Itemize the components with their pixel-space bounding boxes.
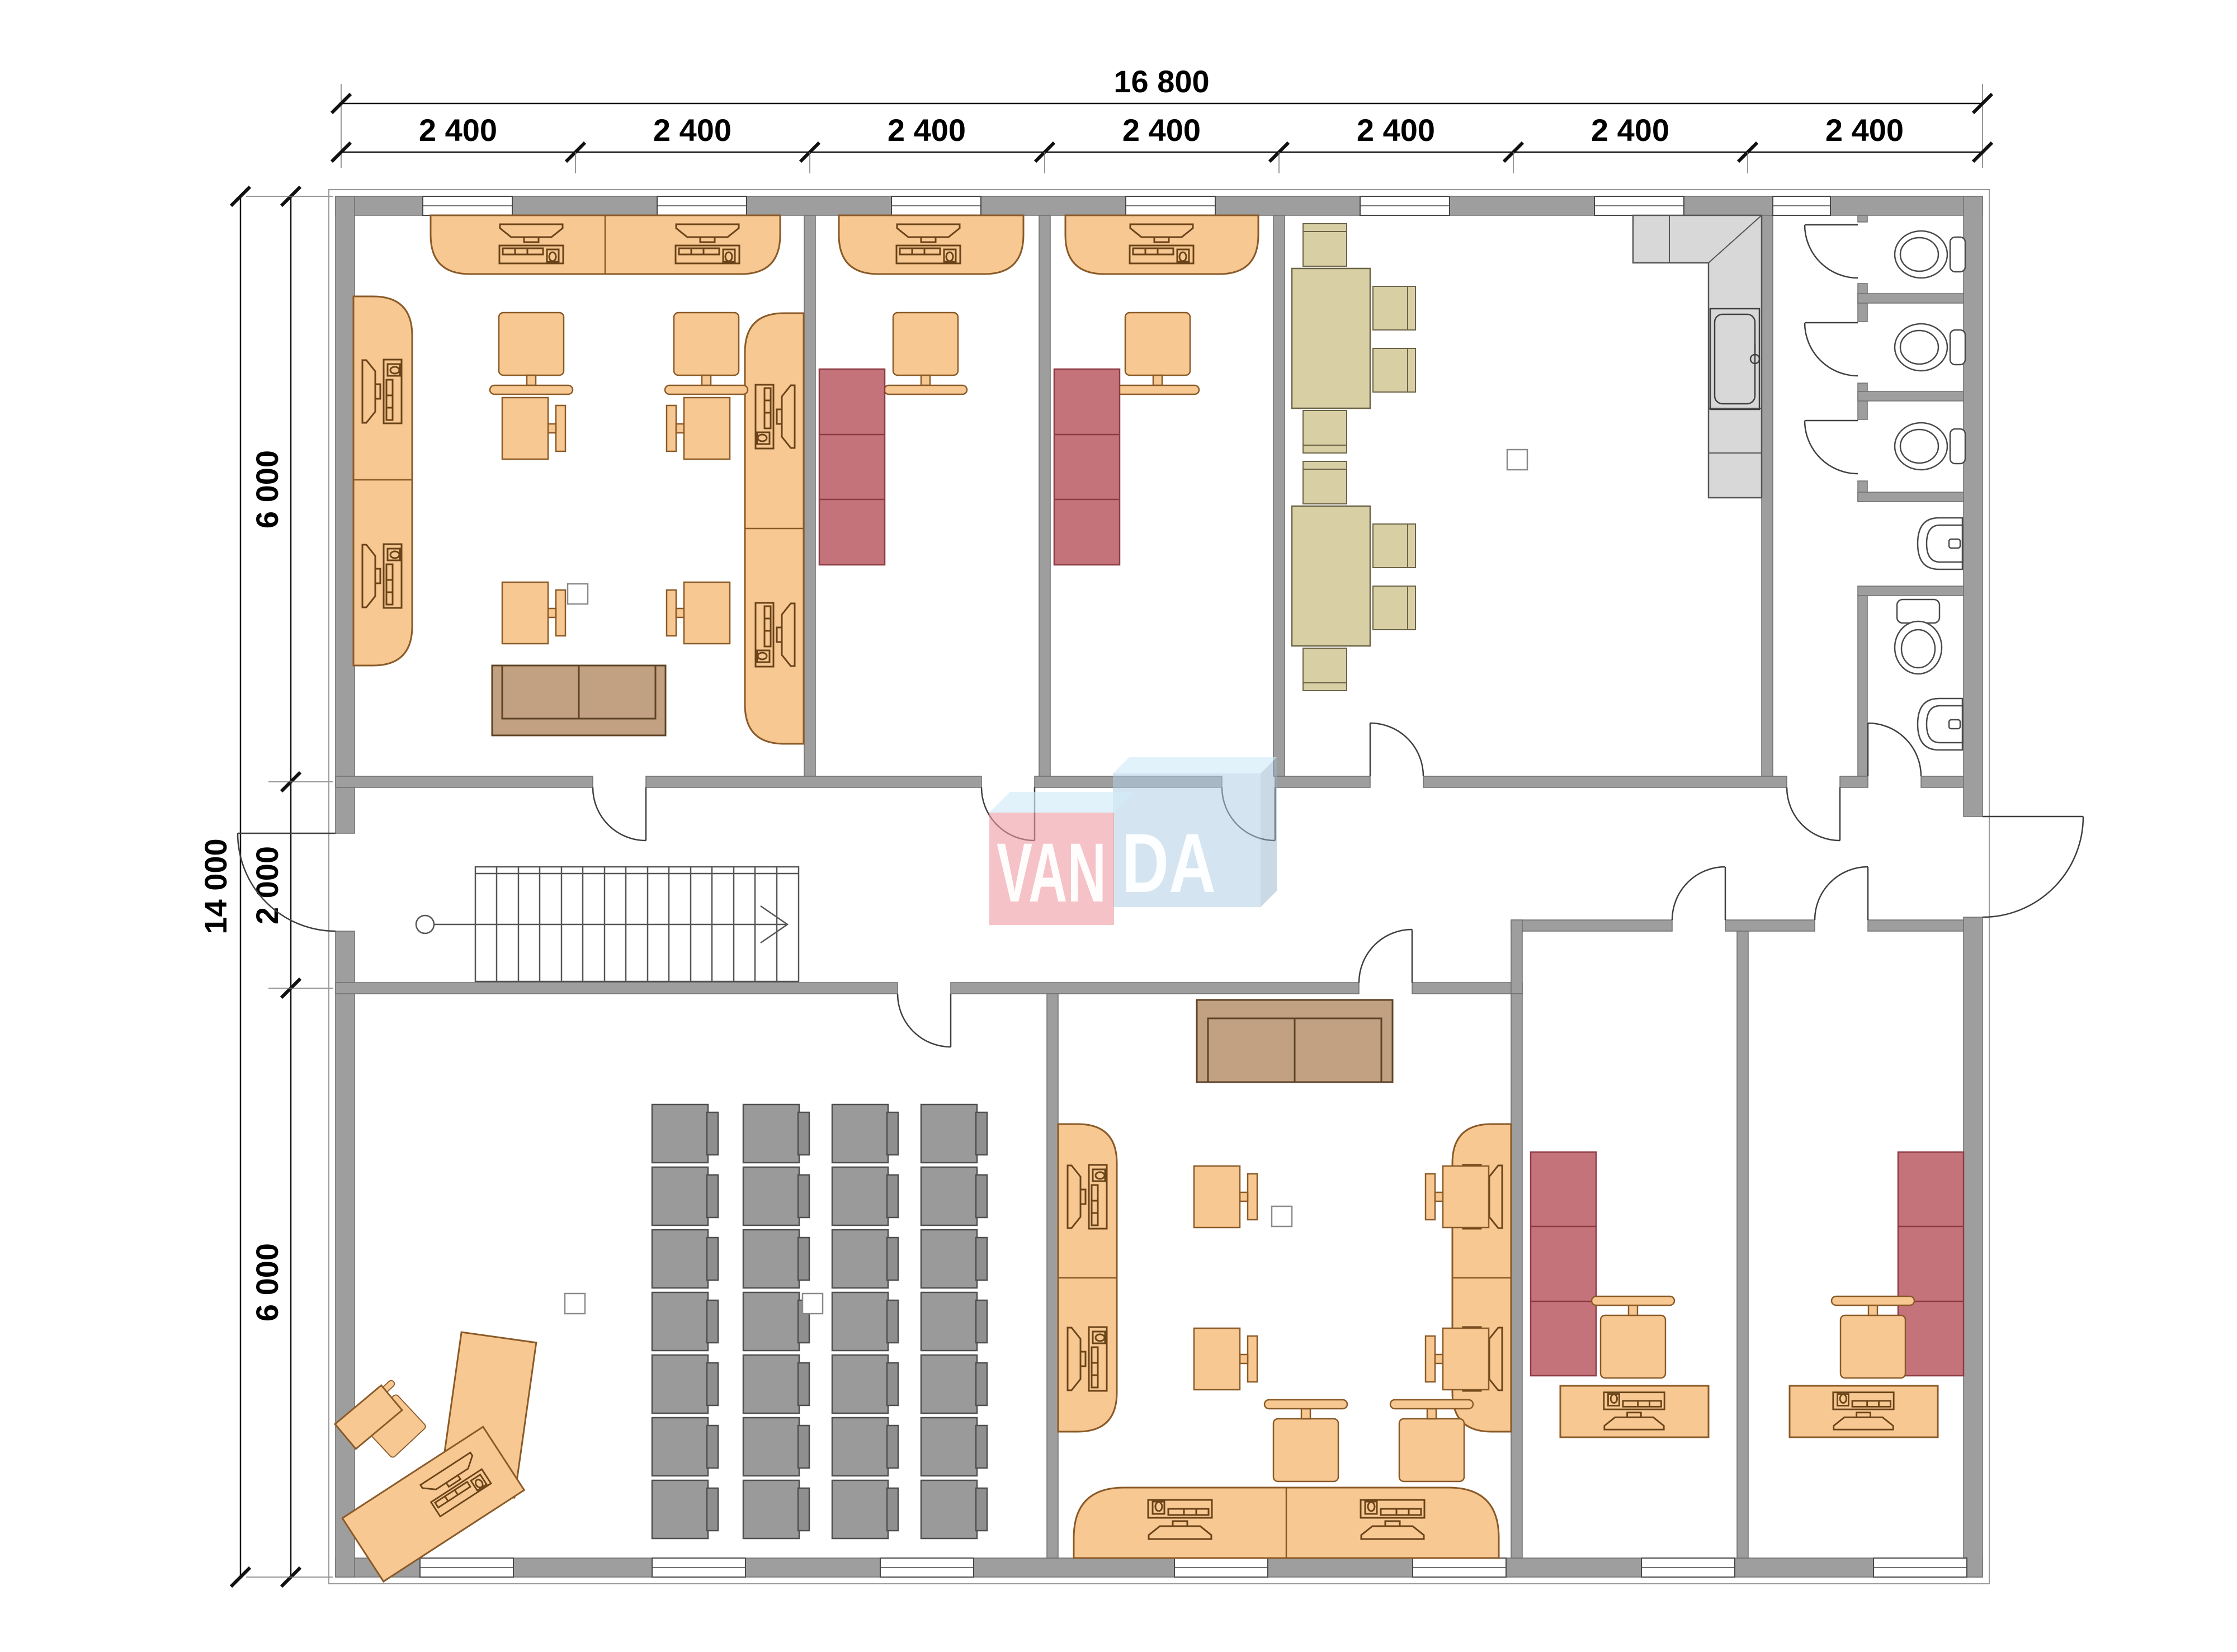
room-classroom	[335, 1105, 987, 1582]
window-icon	[1773, 196, 1830, 215]
sofa-icon	[492, 665, 666, 735]
wash-basin-icon	[1918, 698, 1962, 750]
teacher-desk	[335, 1332, 536, 1582]
logo-blue-box-top	[1113, 757, 1277, 773]
height-segment-label: 6 000	[249, 1243, 285, 1321]
classroom-desk-icon	[743, 1418, 809, 1476]
classroom-desk-icon	[921, 1105, 987, 1163]
toilet-icon	[1895, 324, 1965, 371]
column-marker	[803, 1294, 823, 1314]
office-chair-icon	[1116, 313, 1199, 394]
beige-chair-icon	[1303, 648, 1347, 691]
classroom-desk-icon	[743, 1105, 809, 1163]
counter-desk	[353, 296, 412, 665]
desk-chair-pair-icon	[1194, 1328, 1257, 1390]
classroom-desk-icon	[743, 1480, 809, 1538]
classroom-desk-icon	[743, 1230, 809, 1288]
red-shelf-icon	[819, 369, 885, 565]
window-icon	[891, 196, 981, 215]
door-swing-icon	[1805, 323, 1858, 376]
classroom-desk-icon	[652, 1230, 718, 1288]
window-icon	[1641, 1558, 1735, 1577]
window-icon	[423, 196, 512, 215]
toilet-icon	[1895, 231, 1965, 278]
left-total-dimension: 14 000	[198, 187, 250, 1587]
window-icon	[880, 1558, 974, 1577]
window-icon	[1873, 1558, 1967, 1577]
bay-label: 2 400	[1591, 112, 1669, 148]
desk-chair-pair-icon	[502, 398, 565, 459]
classroom-desk-icon	[921, 1292, 987, 1351]
beige-chair-icon	[1373, 586, 1415, 630]
classroom-desk-icon	[921, 1418, 987, 1476]
office-chair-icon	[490, 313, 573, 394]
window-icon	[1174, 1558, 1268, 1577]
office-chair-icon	[1264, 1400, 1347, 1481]
office-chair-icon	[665, 313, 748, 394]
desk-chair-pair-icon	[1194, 1166, 1257, 1228]
logo-pink-box-top	[989, 792, 1135, 813]
window-icon	[1594, 196, 1684, 215]
column-marker	[1507, 450, 1527, 470]
desk-chair-pair-icon	[667, 582, 730, 644]
floor-plan-drawing: 16 800 2 400 2 400 2 400 2 400 2 400 2 4…	[0, 0, 2237, 1652]
beige-chair-icon	[1373, 286, 1415, 330]
left-segment-dimensions: 6 000 2 000 6 000	[246, 187, 333, 1587]
room-office-3	[1054, 215, 1258, 565]
logo-blue-box-side	[1261, 757, 1277, 907]
stairs-icon	[416, 867, 799, 981]
window-icon	[1413, 1558, 1506, 1577]
window-icon	[657, 196, 747, 215]
logo-text-da: DA	[1122, 816, 1216, 910]
door-swing-icon	[1805, 225, 1858, 278]
door-swing-icon	[1359, 929, 1412, 983]
classroom-desk-icon	[832, 1292, 898, 1351]
classroom-desk-icon	[743, 1355, 809, 1413]
room-office-bottom-b	[1790, 1152, 1964, 1437]
classroom-desk-icon	[921, 1167, 987, 1225]
desk-chair-pair-icon	[1426, 1328, 1489, 1390]
classroom-desk-icon	[743, 1292, 809, 1351]
door-swing-icon	[1805, 421, 1858, 474]
door-swing-icon	[593, 787, 646, 841]
classroom-desk-icon	[921, 1230, 987, 1288]
classroom-desk-icon	[832, 1418, 898, 1476]
classroom-desk-icon	[652, 1167, 718, 1225]
column-marker	[1272, 1206, 1292, 1226]
classroom-desk-icon	[652, 1480, 718, 1538]
window-icon	[652, 1558, 745, 1577]
window-icon	[1360, 196, 1450, 215]
total-height-label: 14 000	[198, 838, 233, 934]
sofa-icon	[1197, 1000, 1393, 1082]
beige-chair-icon	[1373, 348, 1415, 392]
beige-table	[1292, 268, 1370, 408]
toilet-icon	[1895, 600, 1942, 674]
bay-label: 2 400	[653, 112, 731, 148]
red-shelf-icon	[1054, 369, 1120, 565]
room-open-office-top-left	[353, 215, 804, 744]
door-swing-icon	[1370, 723, 1423, 776]
classroom-desk-icon	[743, 1167, 809, 1225]
classroom-desk-icon	[832, 1105, 898, 1163]
total-width-label: 16 800	[1113, 64, 1209, 99]
door-swing-icon	[1787, 787, 1840, 841]
column-marker	[565, 1294, 585, 1314]
classroom-desk-icon	[832, 1480, 898, 1538]
desk-chair-pair-icon	[1426, 1166, 1489, 1228]
desk-chair-pair-icon	[502, 582, 565, 644]
classroom-desk-icon	[832, 1230, 898, 1288]
office-chair-icon	[1592, 1296, 1674, 1378]
logo-text-van: VAN	[997, 825, 1106, 919]
bay-label: 2 400	[888, 112, 966, 148]
room-office-2	[819, 215, 1023, 565]
floor-plan-page: 16 800 2 400 2 400 2 400 2 400 2 400 2 4…	[0, 0, 2237, 1652]
door-swing-icon	[1672, 867, 1725, 920]
window-icon	[420, 1558, 513, 1577]
kitchen-counter	[1633, 215, 1762, 498]
classroom-desk-icon	[921, 1355, 987, 1413]
bay-label: 2 400	[1825, 112, 1904, 148]
red-shelf-icon	[1531, 1152, 1596, 1376]
bay-label: 2 400	[419, 112, 497, 148]
beige-chair-icon	[1303, 410, 1347, 453]
door-swing-icon	[898, 994, 951, 1047]
classroom-desk-icon	[921, 1480, 987, 1538]
door-swing-icon	[1868, 723, 1921, 776]
wash-basin-icon	[1918, 518, 1962, 569]
office-chair-icon	[884, 313, 967, 394]
column-marker	[568, 584, 588, 604]
beige-chair-icon	[1303, 461, 1347, 504]
classroom-desk-icon	[832, 1355, 898, 1413]
classroom-desk-icon	[652, 1418, 718, 1476]
vanda-logo-watermark: VAN DA	[989, 757, 1277, 925]
bay-label: 2 400	[1357, 112, 1435, 148]
beige-chair-icon	[1303, 224, 1347, 266]
classroom-desk-icon	[652, 1105, 718, 1163]
classroom-desk-icon	[652, 1355, 718, 1413]
bathrooms	[1895, 231, 1965, 750]
beige-chair-icon	[1373, 524, 1415, 568]
red-shelf-icon	[1898, 1152, 1964, 1376]
door-swing-icon	[1815, 867, 1868, 920]
height-segment-label: 6 000	[249, 450, 285, 528]
room-break-kitchen	[1292, 215, 1762, 691]
room-open-office-bottom	[1058, 1000, 1511, 1558]
toilet-icon	[1895, 423, 1965, 470]
exit-door-swing-icon	[1983, 816, 2083, 917]
top-bay-dimensions: 2 400 2 400 2 400 2 400 2 400 2 400 2 40…	[332, 112, 1992, 173]
desk-chair-pair-icon	[667, 398, 730, 459]
bay-label: 2 400	[1122, 112, 1201, 148]
room-office-bottom-a	[1531, 1152, 1709, 1437]
classroom-desk-icon	[652, 1292, 718, 1351]
beige-table	[1292, 506, 1370, 646]
classroom-desk-icon	[832, 1167, 898, 1225]
window-icon	[1126, 196, 1215, 215]
